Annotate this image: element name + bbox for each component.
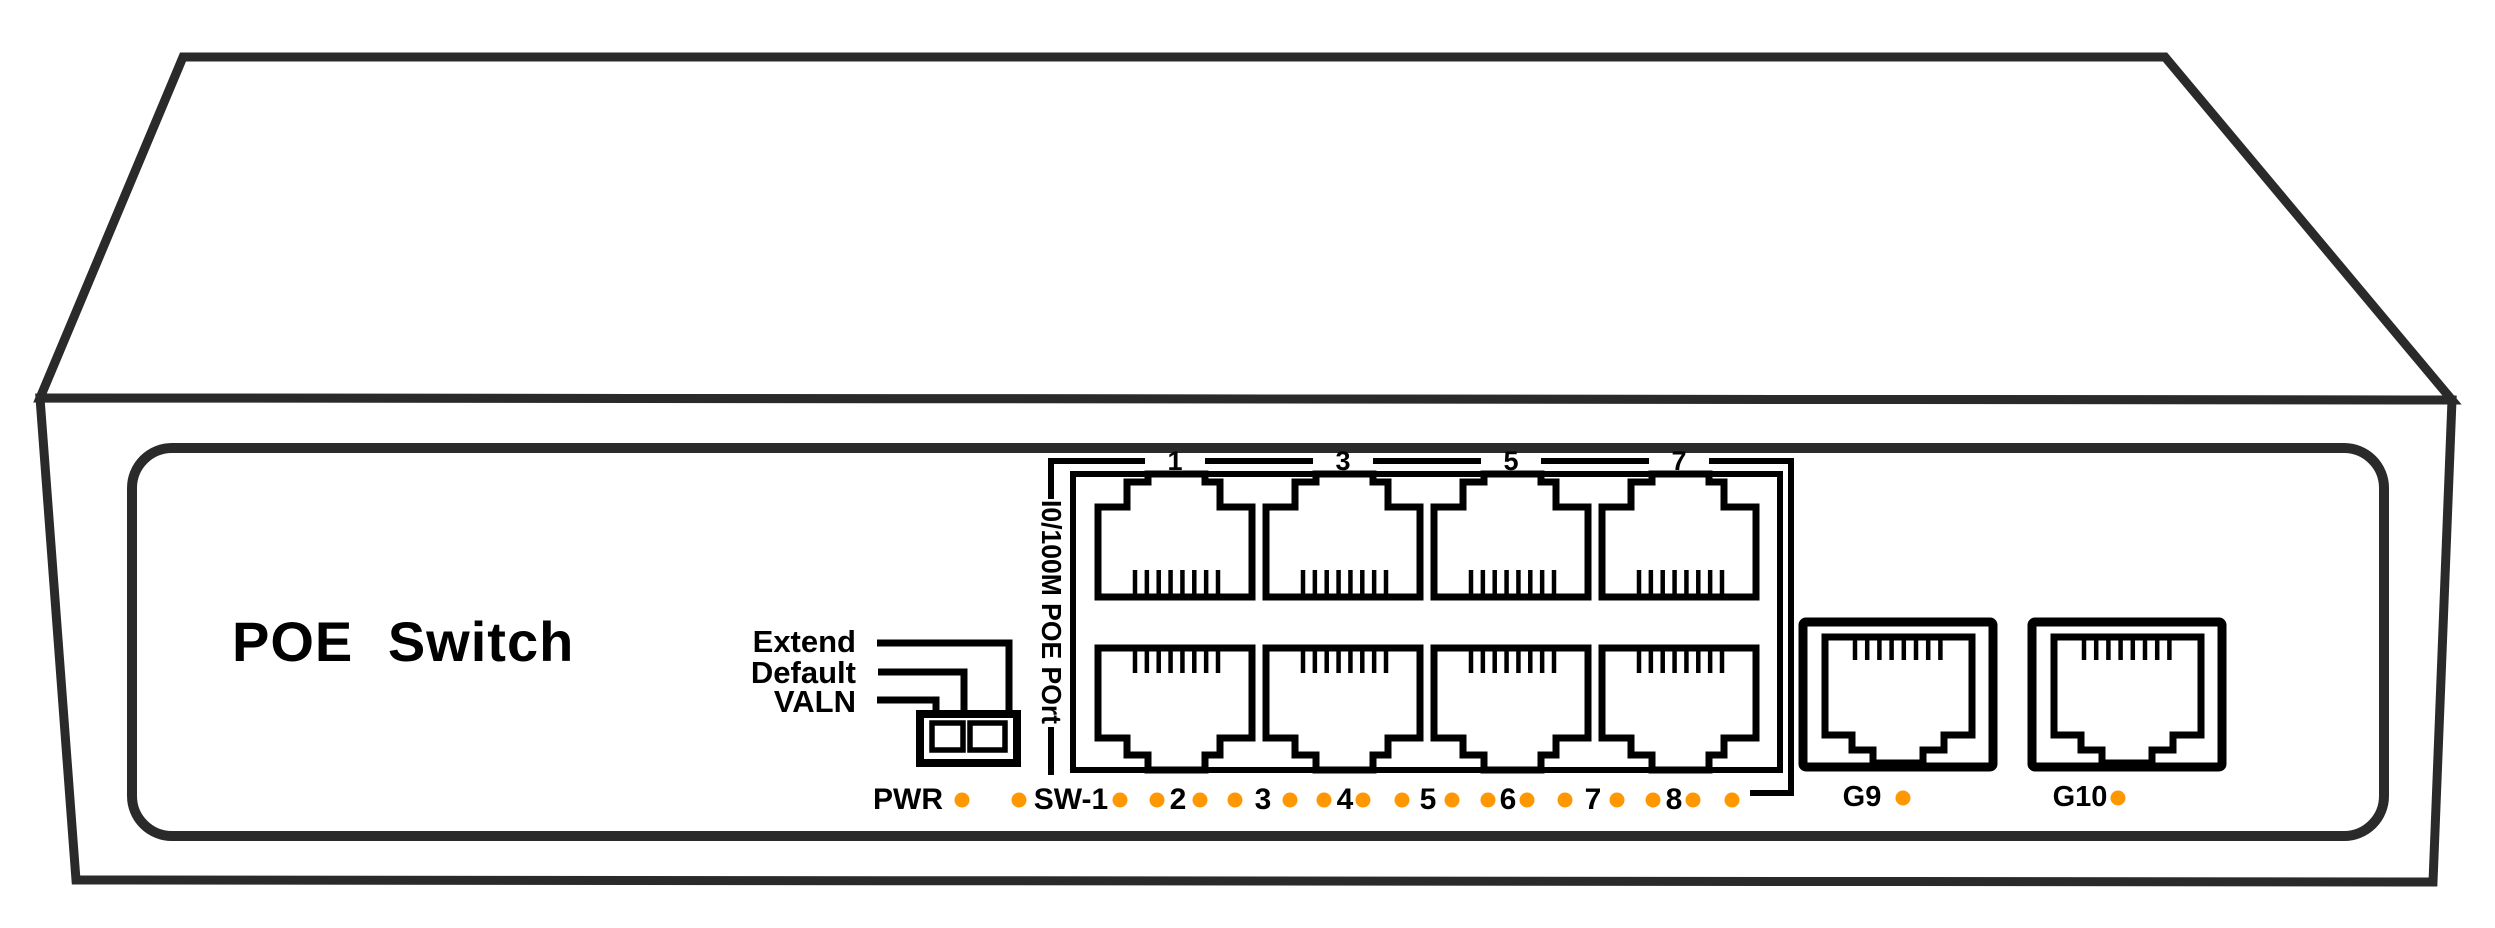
led-dot [1646, 793, 1661, 808]
led-dot [1686, 793, 1701, 808]
led-label-5: 5 [1420, 783, 1437, 816]
led-dot [1725, 793, 1740, 808]
led-dot [1610, 793, 1625, 808]
led-dot [1481, 793, 1496, 808]
poe-switch-diagram: POE Switch Extend Default VALN I0/100M P… [0, 0, 2495, 928]
led-dot [1520, 793, 1535, 808]
led-dot [2111, 791, 2126, 806]
port-group-vertical-label: I0/100M POE POrt [1036, 500, 1067, 724]
led-dot [1228, 793, 1243, 808]
led-dot [1558, 793, 1573, 808]
led-dot [1317, 793, 1332, 808]
device-title: POE Switch [232, 610, 574, 673]
led-dot [1395, 793, 1410, 808]
led-dot [1896, 791, 1911, 806]
led-dot [1012, 793, 1027, 808]
led-label-SW-1: SW-1 [1034, 783, 1108, 816]
led-label-3: 3 [1255, 783, 1272, 816]
chassis-top-face [40, 57, 2452, 400]
led-label-8: 8 [1666, 783, 1683, 816]
led-label-6: 6 [1500, 783, 1517, 816]
led-dot [955, 793, 970, 808]
led-dot [1283, 793, 1298, 808]
led-label-2: 2 [1170, 783, 1187, 816]
led-dot [1356, 793, 1371, 808]
uplink-label-G9: G9 [1843, 781, 1882, 813]
dip-label-extend: Extend [753, 624, 856, 659]
chassis [40, 57, 2452, 882]
led-dot [1150, 793, 1165, 808]
dip-label-valn: VALN [774, 684, 856, 719]
led-label-4: 4 [1337, 783, 1354, 816]
led-dot [1445, 793, 1460, 808]
led-dot [1193, 793, 1208, 808]
led-label-7: 7 [1585, 783, 1602, 816]
led-label-pwr: PWR [873, 783, 943, 816]
led-dot [1113, 793, 1128, 808]
uplink-label-G10: G10 [2053, 781, 2108, 813]
